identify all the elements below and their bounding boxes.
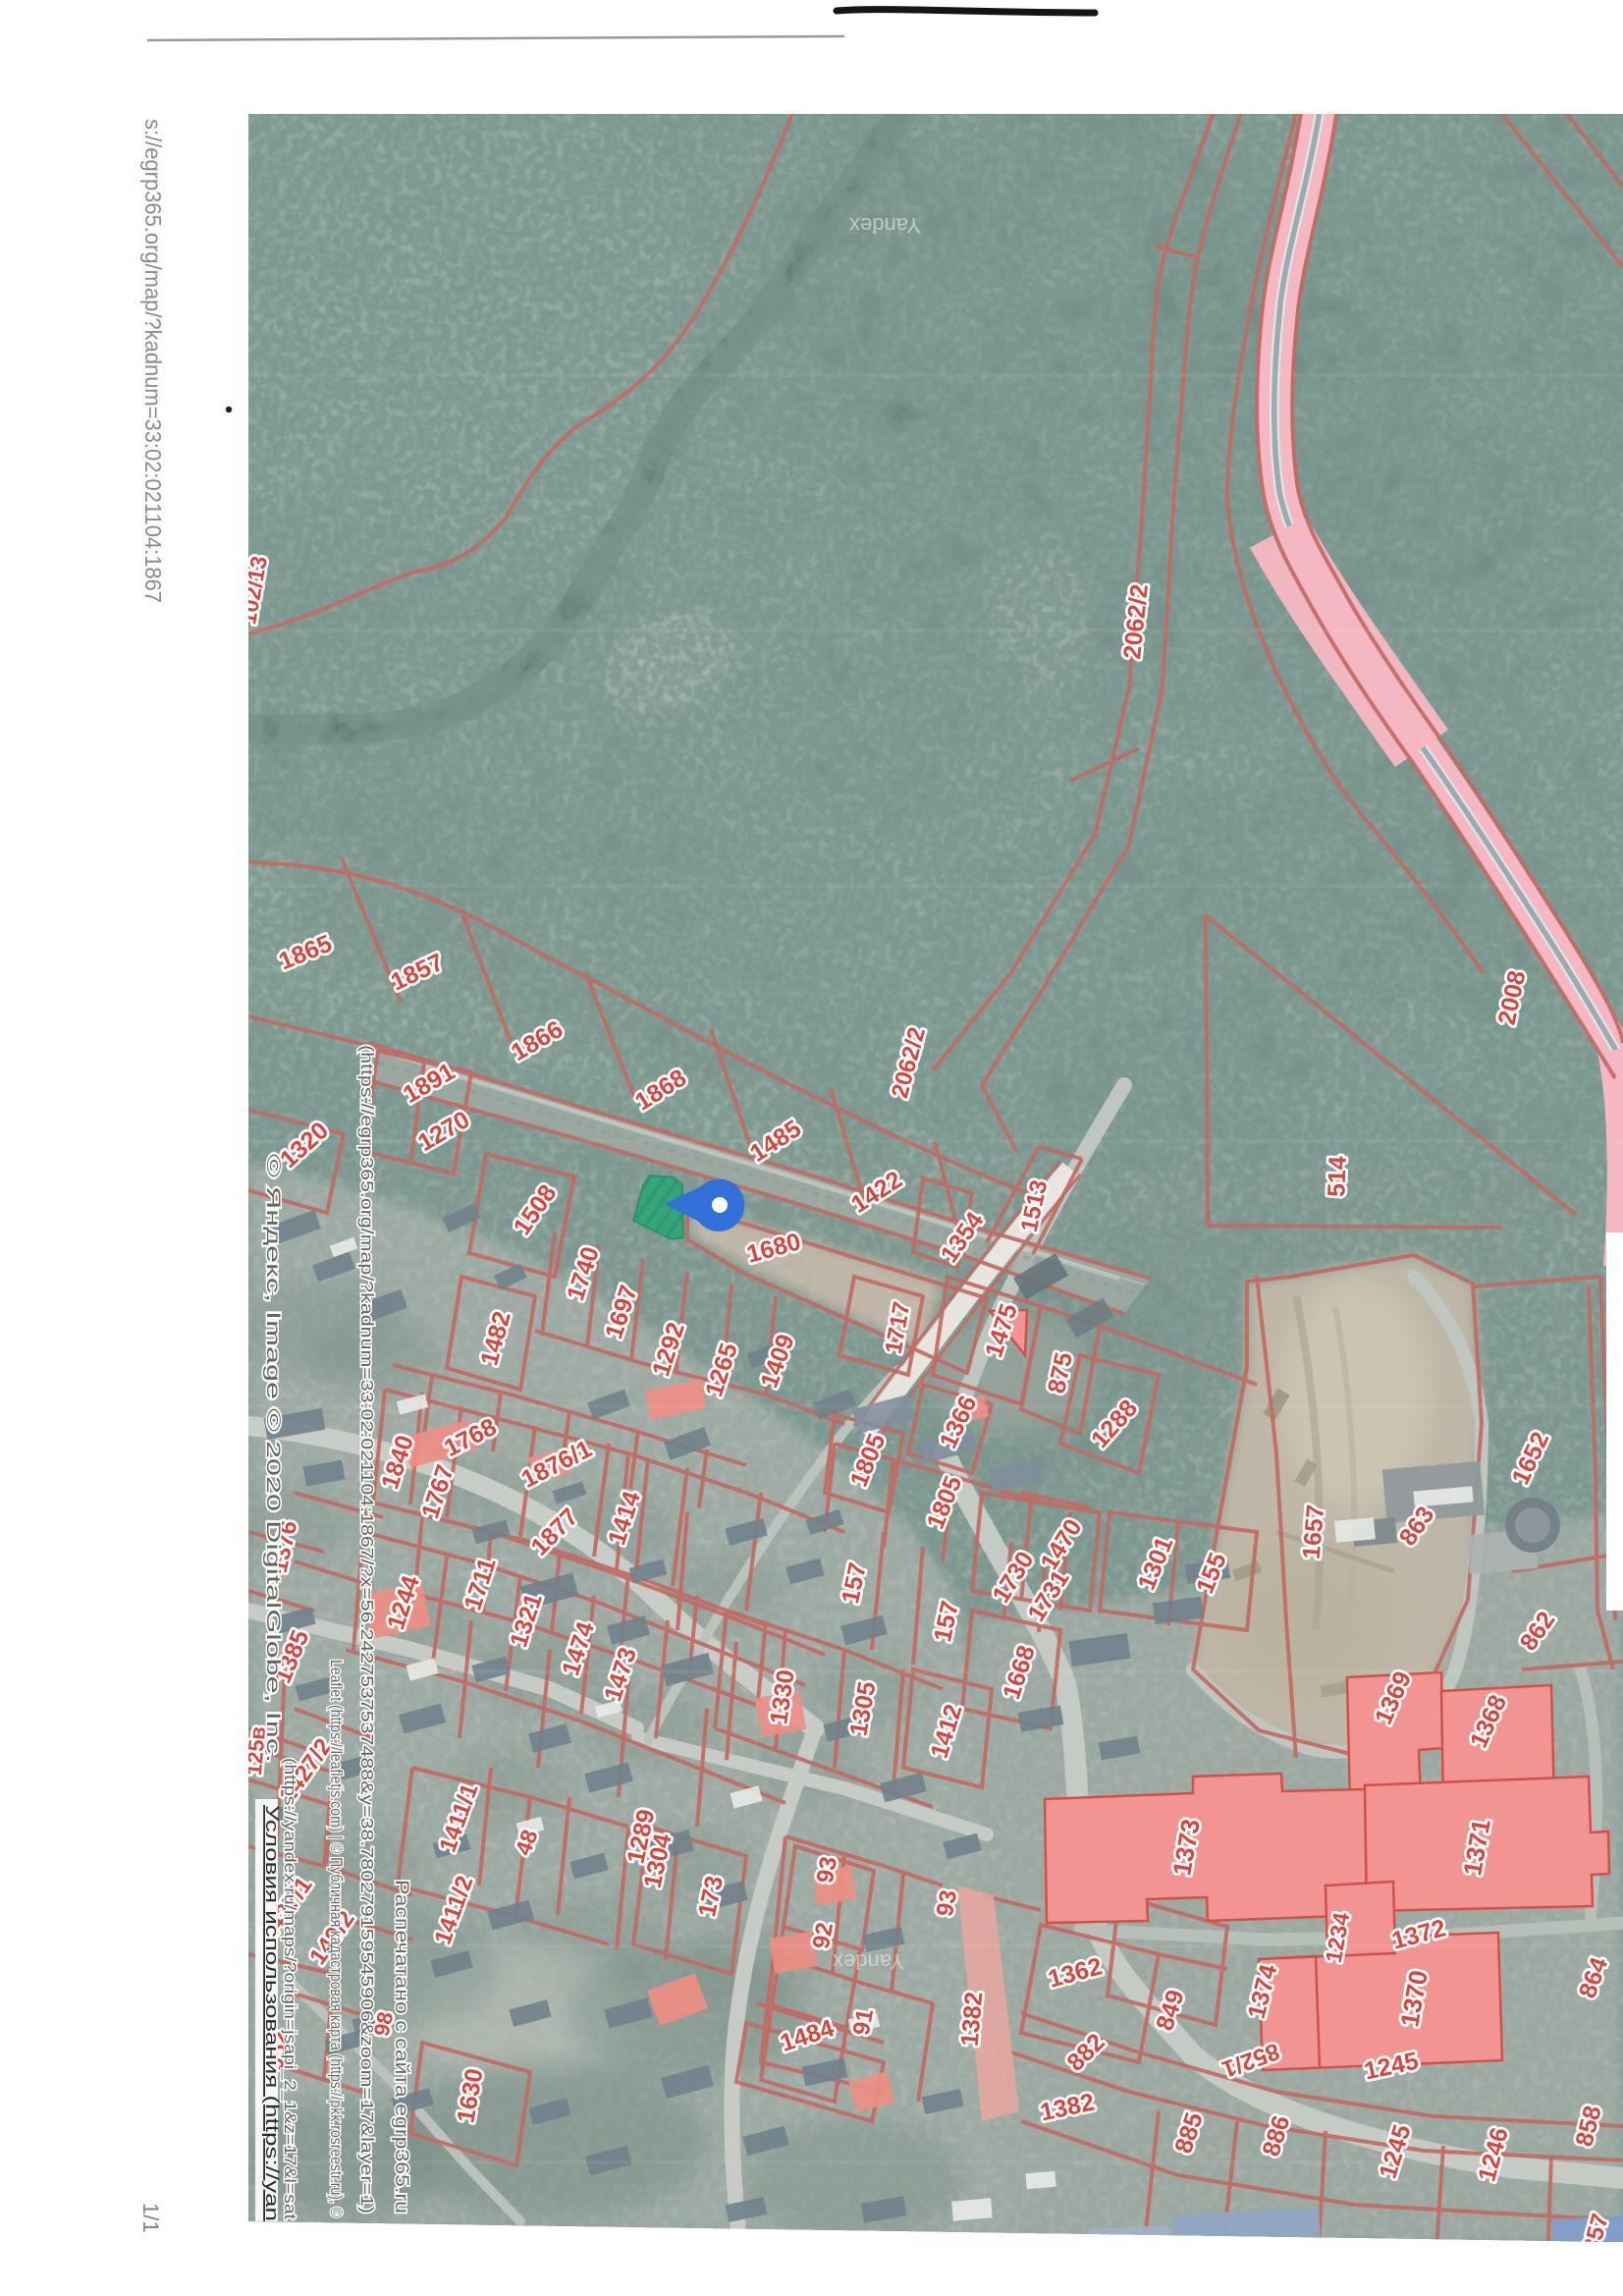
svg-text:1382: 1382 — [956, 1991, 989, 2048]
svg-text:© Яндекс, Image © 2020 Digital: © Яндекс, Image © 2020 DigitalGlobe, Inc… — [262, 1154, 283, 1763]
svg-text:1657: 1657 — [1298, 1503, 1330, 1560]
svg-text:Yandex: Yandex — [833, 1949, 904, 1974]
svg-text:92: 92 — [808, 1921, 839, 1951]
svg-text:s://egrp365.org/map/?kadnum=33: s://egrp365.org/map/?kadnum=33:02:021104… — [140, 119, 166, 603]
svg-text:Leaflet (https://leafletjs.com: Leaflet (https://leafletjs.com) | © Публ… — [327, 1660, 346, 2217]
svg-text:(https://yandex.ru/maps/?origi: (https://yandex.ru/maps/?origin=jsapi_2_… — [281, 1758, 299, 2219]
svg-text:Условия использования (https:: Условия использования (https://yan — [262, 1805, 282, 2221]
svg-text:Распечатано с сайта egrp365.ru: Распечатано с сайта egrp365.ru — [391, 1880, 411, 2214]
svg-text:514: 514 — [1323, 1156, 1351, 1198]
svg-text:93: 93 — [812, 1855, 842, 1886]
svg-text:Yandex: Yandex — [849, 213, 921, 238]
svg-text:(https://egrp365.org/map/?kadn: (https://egrp365.org/map/?kadnum=33:02:0… — [357, 1045, 377, 2214]
svg-text:93: 93 — [932, 1888, 962, 1919]
svg-text:91: 91 — [848, 2007, 879, 2038]
svg-text:1/1: 1/1 — [138, 2203, 163, 2233]
